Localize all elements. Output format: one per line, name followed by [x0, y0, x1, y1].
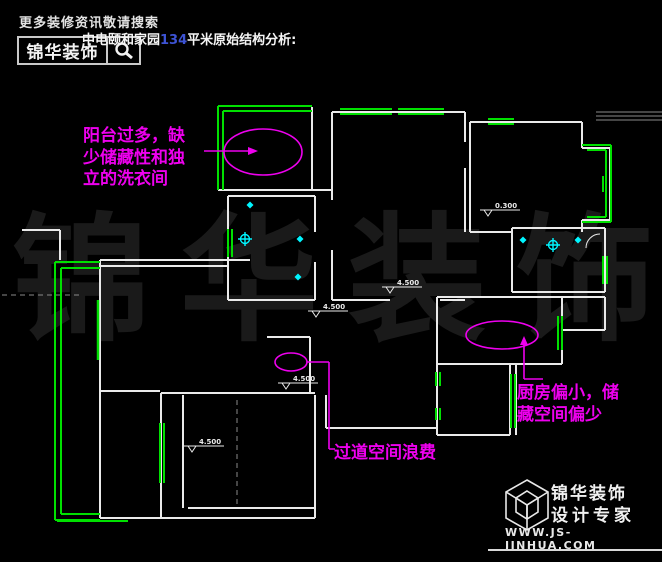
note-line: 阳台过多，缺 [83, 126, 185, 148]
ceiling-symbol-icon [575, 237, 582, 244]
leader-arrow [248, 147, 258, 155]
elevation-marker-label: 4.500 [199, 438, 221, 446]
ceiling-symbol-icon [297, 236, 304, 243]
footer-divider [488, 549, 662, 551]
elevation-marker-label: 4.500 [323, 303, 345, 311]
leader-arrow [520, 336, 528, 345]
note-line: 少储藏性和独 [83, 148, 185, 170]
ceiling-symbol-icon [520, 237, 527, 244]
ceiling-symbol-icon [247, 202, 254, 209]
note-kitchen: 厨房偏小，储 藏空间偏少 [517, 383, 619, 426]
elevation-marker-label: 0.300 [495, 202, 517, 210]
note-line: 藏空间偏少 [517, 405, 619, 427]
note-corridor: 过道空间浪费 [334, 443, 436, 465]
elevation-marker-triangle [312, 311, 320, 317]
ceiling-symbol-icon [295, 274, 302, 281]
floorplan-drawing: 4.5004.5000.3004.5004.500 [0, 0, 662, 562]
elevation-marker-triangle [282, 383, 290, 389]
note-line: 厨房偏小，储 [517, 383, 619, 405]
note-line: 过道空间浪费 [334, 443, 436, 465]
highlight-ellipse-corridor [275, 353, 307, 371]
floorplan-image: 更多装修资讯敬请搜索 锦华装饰 中电颐和家园134平米原始结构分析: 锦 华 装… [0, 0, 662, 562]
elevation-marker-label: 4.500 [397, 279, 419, 287]
elevation-marker-triangle [484, 210, 492, 216]
footer-tagline: 设计专家 [551, 501, 635, 526]
note-balcony: 阳台过多，缺 少储藏性和独 立的洗衣间 [83, 126, 185, 191]
note-line: 立的洗衣间 [83, 169, 185, 191]
cube-logo-icon [504, 479, 550, 531]
highlight-ellipse-balcony [224, 129, 302, 175]
elevation-marker-label: 4.500 [293, 375, 315, 383]
highlight-annotations [204, 129, 543, 449]
sprinkler-icon [546, 238, 560, 252]
sprinkler-icon [238, 232, 252, 246]
elevation-marker-triangle [386, 287, 394, 293]
door-arc [586, 234, 600, 248]
elevation-marker-triangle [188, 446, 196, 452]
